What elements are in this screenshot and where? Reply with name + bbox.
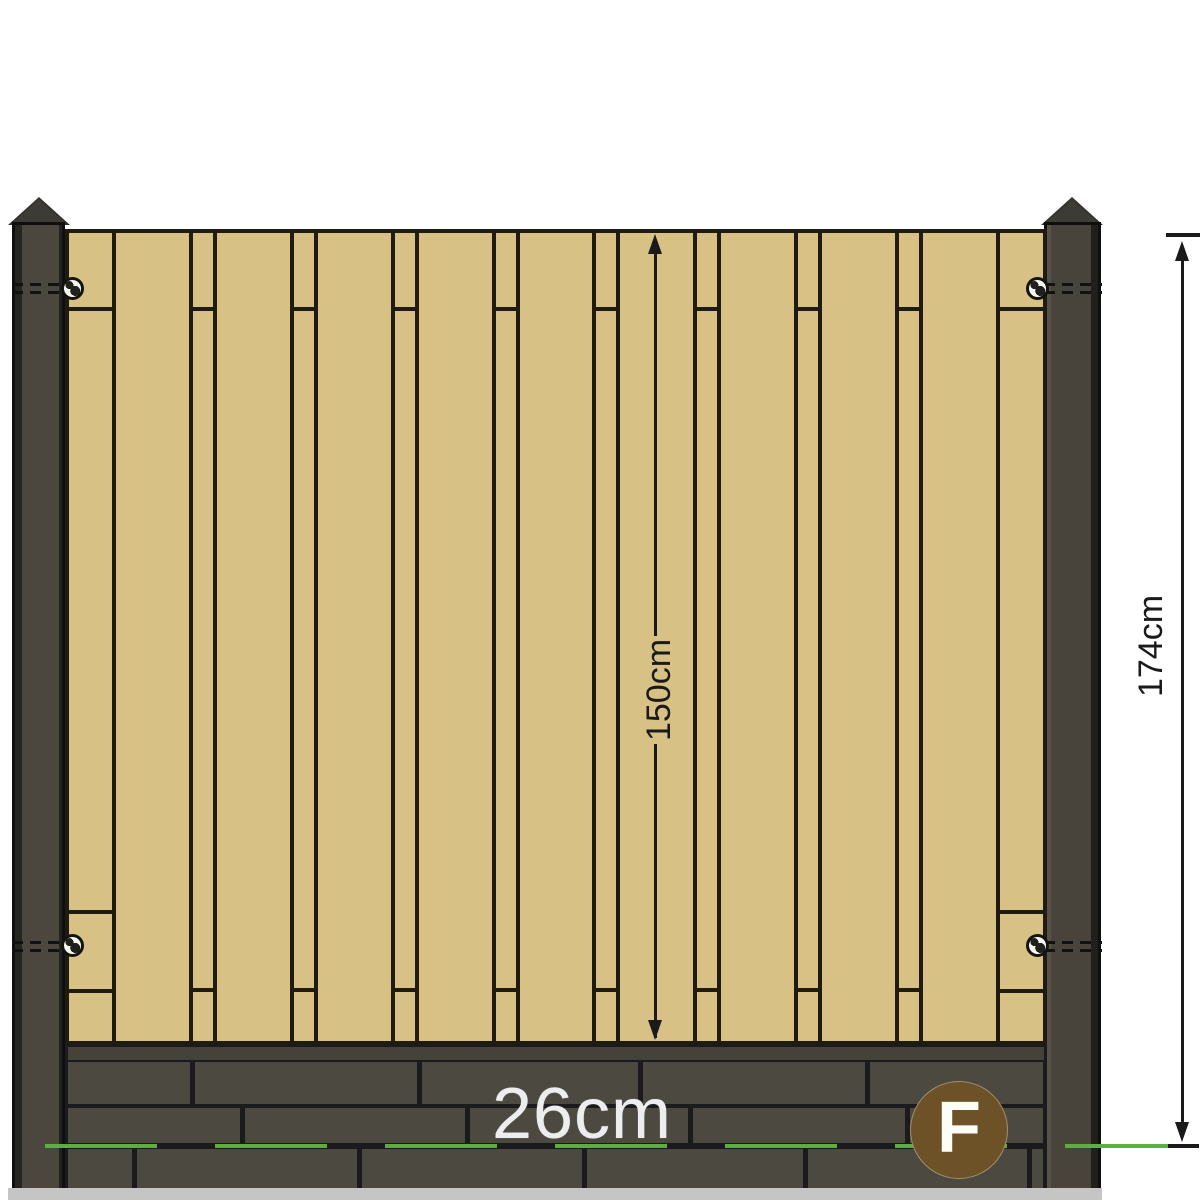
bolt-hidden-line <box>1044 949 1102 952</box>
fence-diagram: 26cm F 150cm 174cm <box>0 0 1200 1200</box>
board-gap-line <box>919 233 923 1041</box>
brick <box>68 1149 132 1188</box>
brick <box>68 1062 190 1104</box>
board-seam <box>899 988 919 992</box>
board-gap-line <box>112 233 116 1041</box>
dimension-arrow-down-icon <box>1175 1122 1189 1142</box>
dimension-tick <box>1168 1144 1199 1148</box>
dimension-arrow-up-icon <box>648 234 662 254</box>
board-seam <box>1000 989 1043 993</box>
left-post <box>12 222 65 1200</box>
board-seam <box>395 307 415 311</box>
bolt-hidden-line <box>1044 291 1102 294</box>
brick <box>693 1108 905 1143</box>
brick <box>587 1149 803 1188</box>
board-gap-line <box>415 233 419 1041</box>
bolt-hidden-line <box>12 291 67 294</box>
board-seam <box>596 988 616 992</box>
board-gap-line <box>818 233 822 1041</box>
total-height-value: 174cm <box>1134 595 1168 697</box>
dimension-tick <box>1166 233 1200 237</box>
board-gap-line <box>492 233 496 1041</box>
board-gap-line <box>290 233 294 1041</box>
board-seam <box>69 989 112 993</box>
board-gap-line <box>996 233 1000 1041</box>
board-gap-line <box>314 233 318 1041</box>
board-gap-line <box>592 233 596 1041</box>
bolt-hidden-line <box>1044 283 1102 286</box>
screw-icon <box>61 277 84 300</box>
bolt-hidden-line <box>1044 941 1102 944</box>
ground-strip <box>8 1188 1102 1200</box>
dimension-arrow-up-icon <box>1175 241 1189 261</box>
board-seam <box>697 307 717 311</box>
board-seam <box>496 307 516 311</box>
screw-icon <box>61 934 84 957</box>
fence-panel <box>65 229 1047 1045</box>
dimension-line <box>654 240 657 636</box>
board-seam <box>798 307 818 311</box>
board-seam <box>1000 307 1043 311</box>
ground-line <box>45 1144 1198 1148</box>
board-seam <box>294 307 314 311</box>
board-gap-line <box>616 233 620 1041</box>
gravel-height-label: 26cm <box>492 1078 672 1150</box>
board-seam <box>596 307 616 311</box>
dimension-line <box>654 744 657 1038</box>
board-seam <box>798 988 818 992</box>
brick <box>137 1149 357 1188</box>
board-gap-line <box>693 233 697 1041</box>
dimension-line <box>1181 250 1184 1130</box>
board-seam <box>69 910 112 914</box>
type-badge-letter: F <box>937 1092 981 1164</box>
board-gap-line <box>391 233 395 1041</box>
right-post-cap <box>1041 197 1103 225</box>
panel-height-value: 150cm <box>642 639 676 741</box>
board-seam <box>697 988 717 992</box>
board-seam <box>294 988 314 992</box>
board-gap-line <box>717 233 721 1041</box>
brick <box>643 1062 865 1104</box>
board-gap-line <box>189 233 193 1041</box>
board-gap-line <box>516 233 520 1041</box>
board-seam <box>496 988 516 992</box>
brick <box>1032 1149 1043 1188</box>
right-post <box>1044 222 1101 1200</box>
dimension-arrow-down-icon <box>648 1020 662 1040</box>
gravel-board-top-edge <box>68 1047 1044 1060</box>
brick <box>195 1062 417 1104</box>
board-seam <box>395 988 415 992</box>
brick <box>68 1108 240 1143</box>
board-seam <box>69 307 112 311</box>
type-badge: F <box>910 1081 1008 1179</box>
bolt-hidden-line <box>12 283 67 286</box>
board-seam <box>193 988 213 992</box>
board-seam <box>193 307 213 311</box>
board-gap-line <box>895 233 899 1041</box>
screw-icon <box>1026 277 1049 300</box>
left-post-cap <box>8 197 70 225</box>
bolt-hidden-line <box>12 949 67 952</box>
board-gap-line <box>794 233 798 1041</box>
bolt-hidden-line <box>12 941 67 944</box>
board-seam <box>899 307 919 311</box>
brick <box>362 1149 582 1188</box>
screw-icon <box>1026 934 1049 957</box>
board-gap-line <box>213 233 217 1041</box>
board-seam <box>1000 910 1043 914</box>
brick <box>245 1108 465 1143</box>
